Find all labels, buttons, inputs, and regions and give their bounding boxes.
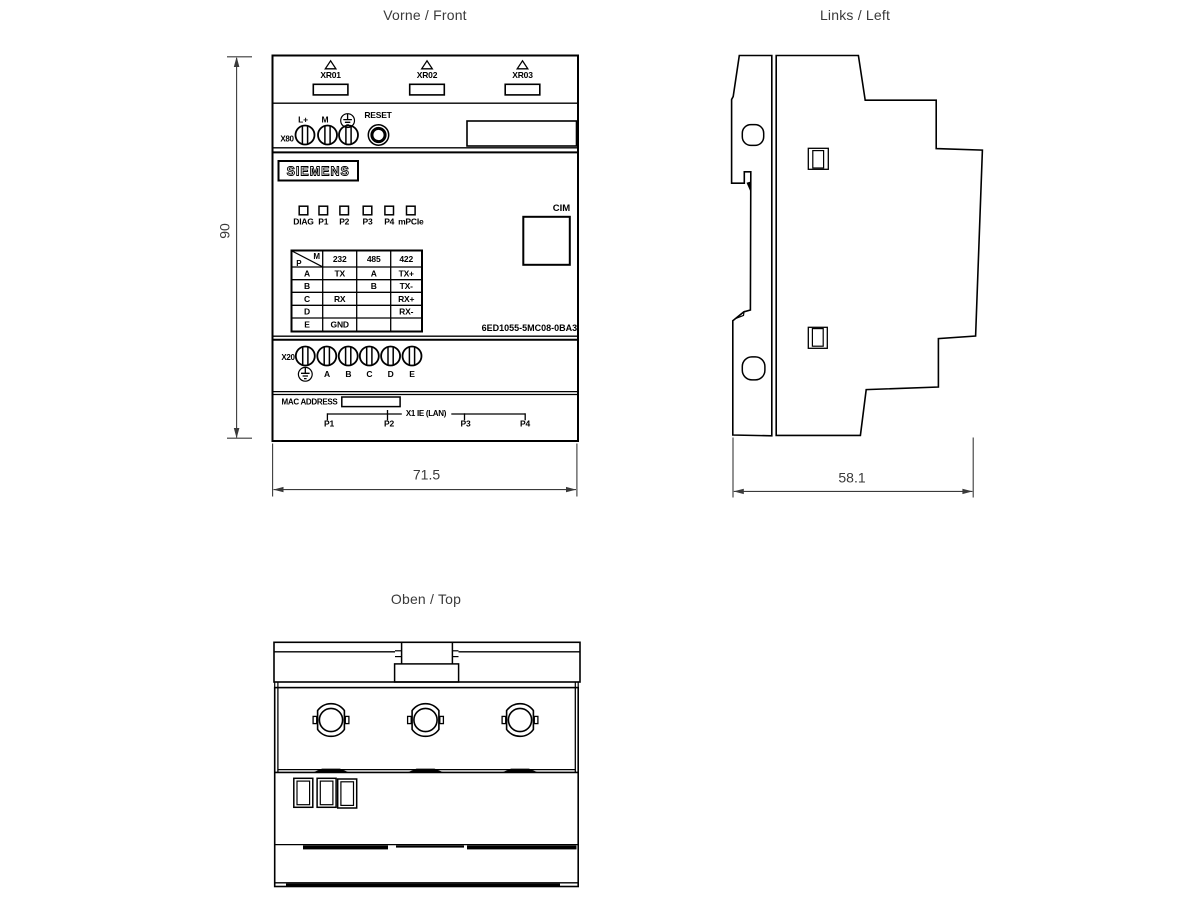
din-rail-clip-profile <box>732 56 772 436</box>
antenna-port-xr02: XR02 <box>410 61 445 95</box>
table-col-header: 232 <box>333 254 347 264</box>
antenna-port-xr03: XR03 <box>505 61 540 95</box>
table-col-header: 422 <box>399 254 413 264</box>
table-cell: TX- <box>400 281 413 291</box>
antenna-connector[interactable] <box>410 84 445 95</box>
screw-terminal-icon[interactable] <box>403 347 422 366</box>
dimension-value: 90 <box>217 223 233 239</box>
antenna-port-label: XR02 <box>417 70 438 80</box>
terminal-top-view <box>317 778 336 807</box>
table-cell: A <box>371 268 377 278</box>
brand-text: SIEMENS <box>287 165 350 179</box>
table-cell: TX+ <box>399 268 414 278</box>
dimension-arrow <box>234 57 240 67</box>
view-title-left: Links / Left <box>820 7 890 23</box>
antenna-port-label: XR01 <box>320 70 341 80</box>
terminal-top-view <box>338 779 357 808</box>
warning-triangle-icon <box>517 61 528 69</box>
led-label: P4 <box>384 217 394 227</box>
led-indicator <box>363 206 372 215</box>
seam-shading <box>467 845 577 849</box>
io-terminal-block: X20 A B C D E <box>281 347 421 382</box>
dimension-value: 71.5 <box>413 467 440 483</box>
screw-terminal-icon[interactable] <box>360 347 379 366</box>
lan-label: X1 IE (LAN) <box>406 409 447 418</box>
view-title-front: Vorne / Front <box>383 7 467 23</box>
led-label: P2 <box>339 217 349 227</box>
cim-label: CIM <box>553 203 571 214</box>
lan-port-label: P2 <box>384 419 394 429</box>
technical-drawing-page: XR01 XR02 XR03 L+ M RESET X80 SIE <box>0 0 1200 900</box>
io-pin-label: D <box>388 369 394 379</box>
power-connector-label: X80 <box>280 135 294 144</box>
clip-hook-detail <box>747 182 751 193</box>
top-center-tab <box>395 642 459 682</box>
table-cell: RX <box>334 294 346 304</box>
dimension-arrow <box>273 487 283 492</box>
terminal-top-view <box>294 778 313 807</box>
table-cell: RX+ <box>398 294 414 304</box>
led-indicator <box>385 206 394 215</box>
led-label: DIAG <box>293 217 314 227</box>
front-outline <box>273 56 579 442</box>
screw-terminal-icon[interactable] <box>317 347 336 366</box>
lan-port-label: P1 <box>324 419 334 429</box>
table-cell: TX <box>334 268 345 278</box>
reset-label: RESET <box>364 110 392 120</box>
screw-terminal-icon[interactable] <box>318 126 337 145</box>
table-pin: E <box>304 320 310 330</box>
dimension-value: 58.1 <box>838 470 865 486</box>
antenna-connector[interactable] <box>313 84 348 95</box>
pin-table: M P 232 485 422 A TX A TX+ B B TX- C RX … <box>292 251 423 332</box>
antenna-connector[interactable] <box>505 84 540 95</box>
antenna-sma-connector[interactable] <box>313 704 349 737</box>
led-indicator <box>299 206 308 215</box>
drawing: XR01 XR02 XR03 L+ M RESET X80 SIE <box>0 0 1200 900</box>
table-pin: B <box>304 281 310 291</box>
front-view: XR01 XR02 XR03 L+ M RESET X80 SIE <box>273 56 579 442</box>
view-title-top: Oben / Top <box>391 591 461 607</box>
part-number: 6ED1055-5MC08-0BA3 <box>482 323 578 333</box>
led-indicator <box>319 206 328 215</box>
screw-terminal-icon[interactable] <box>296 347 315 366</box>
label-field <box>467 121 577 146</box>
earth-ground-icon <box>298 367 312 381</box>
antenna-port-xr01: XR01 <box>313 61 348 95</box>
screw-terminal-icon[interactable] <box>339 347 358 366</box>
io-connector-label: X20 <box>281 353 295 362</box>
led-label: P3 <box>363 217 373 227</box>
table-cell: B <box>371 281 377 291</box>
dimension-arrow <box>962 489 972 494</box>
antenna-sma-connector[interactable] <box>502 704 538 737</box>
led-indicator <box>407 206 416 215</box>
mac-address-label: MAC ADDRESS <box>282 398 339 407</box>
antenna-port-label: XR03 <box>512 70 533 80</box>
led-indicator <box>340 206 349 215</box>
lan-port-label: P3 <box>461 419 471 429</box>
mac-lan-row: MAC ADDRESS X1 IE (LAN) P1 P2 P3 P4 <box>282 397 531 429</box>
top-view <box>274 642 580 886</box>
seam-shading <box>286 884 560 887</box>
table-pin: C <box>304 294 310 304</box>
table-pin: D <box>304 307 310 317</box>
dimension-arrow <box>234 428 240 438</box>
led-label: mPCIe <box>398 217 424 227</box>
housing-profile <box>776 56 982 436</box>
table-pin: A <box>304 268 310 278</box>
io-pin-label: B <box>345 369 351 379</box>
lan-port-label: P4 <box>520 419 530 429</box>
dimension-depth: 58.1 <box>733 438 973 498</box>
dimension-arrow <box>734 489 744 494</box>
seam-shading <box>396 845 464 847</box>
terminal-label-m: M <box>322 115 329 125</box>
warning-triangle-icon <box>325 61 336 69</box>
table-cell: RX- <box>399 307 413 317</box>
seam-shading <box>303 845 388 849</box>
siemens-logo: SIEMENS <box>279 161 359 181</box>
io-pin-label: E <box>409 369 415 379</box>
terminal-label-lplus: L+ <box>298 115 308 125</box>
antenna-sma-connector[interactable] <box>408 704 444 737</box>
dimension-width: 71.5 <box>273 444 577 497</box>
dimension-arrow <box>566 487 576 492</box>
led-indicators: DIAG P1 P2 P3 P4 mPCIe <box>293 206 424 226</box>
left-view <box>732 56 983 436</box>
screw-terminal-icon[interactable] <box>339 126 358 145</box>
screw-terminal-icon[interactable] <box>381 347 400 366</box>
table-col-header: 485 <box>367 254 381 264</box>
cim-slot[interactable] <box>523 217 570 265</box>
table-corner-m: M <box>313 252 320 261</box>
screw-terminal-icon[interactable] <box>296 126 315 145</box>
dimension-height: 90 <box>217 57 253 438</box>
reset-button[interactable] <box>368 125 388 145</box>
io-pin-label: C <box>366 369 372 379</box>
top-cover-outline <box>274 642 580 682</box>
led-label: P1 <box>318 217 328 227</box>
mac-address-field <box>342 397 400 407</box>
table-cell: GND <box>331 320 349 330</box>
warning-triangle-icon <box>422 61 433 69</box>
io-pin-label: A <box>324 369 330 379</box>
